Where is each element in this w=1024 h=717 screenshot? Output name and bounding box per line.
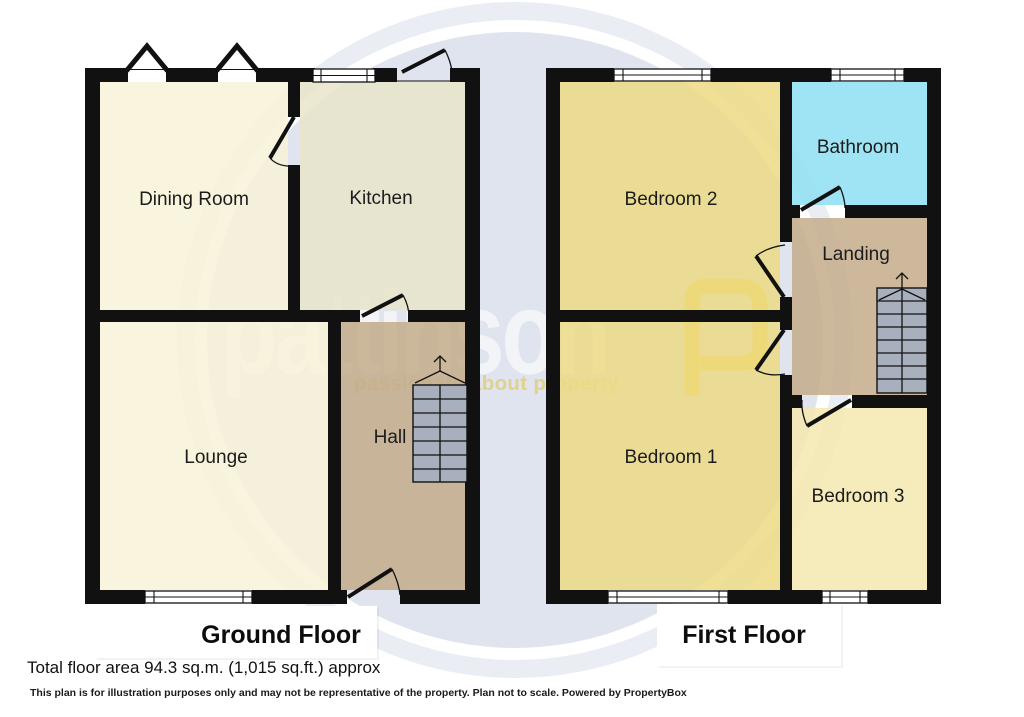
disclaimer-text: This plan is for illustration purposes o… — [30, 687, 687, 699]
bay-chevron-icon — [218, 46, 256, 69]
room-label-bathroom: Bathroom — [817, 137, 899, 158]
ground-floor-title: Ground Floor — [201, 621, 361, 650]
bay-chevron-icon — [128, 46, 166, 69]
room-label-bedroom-1: Bedroom 1 — [625, 447, 718, 468]
room-label-kitchen: Kitchen — [349, 188, 412, 209]
staircase-first — [877, 273, 927, 393]
first-floor-plan: Bedroom 2 Bathroom Landing Bedroom 1 Bed… — [546, 68, 941, 604]
kitchen-exterior-door — [397, 50, 452, 81]
window-symbol — [831, 69, 904, 81]
window-symbol — [822, 591, 868, 603]
first-floor-title: First Floor — [682, 621, 806, 650]
window-symbol — [608, 591, 728, 603]
room-label-hall: Hall — [374, 427, 407, 448]
ground-floor-plan: Dining Room Kitchen Lounge Hall — [85, 46, 480, 604]
window-symbol — [145, 591, 252, 603]
window-symbol — [313, 69, 375, 82]
window-symbol — [614, 69, 711, 81]
room-label-lounge: Lounge — [184, 447, 247, 468]
total-floor-area-text: Total floor area 94.3 sq.m. (1,015 sq.ft… — [27, 658, 380, 678]
room-label-landing: Landing — [822, 244, 890, 265]
room-label-dining-room: Dining Room — [139, 189, 249, 210]
room-label-bedroom-3: Bedroom 3 — [812, 486, 905, 507]
floorplan-page: pattinson passionate about property — [0, 0, 1024, 717]
room-label-bedroom-2: Bedroom 2 — [625, 189, 718, 210]
